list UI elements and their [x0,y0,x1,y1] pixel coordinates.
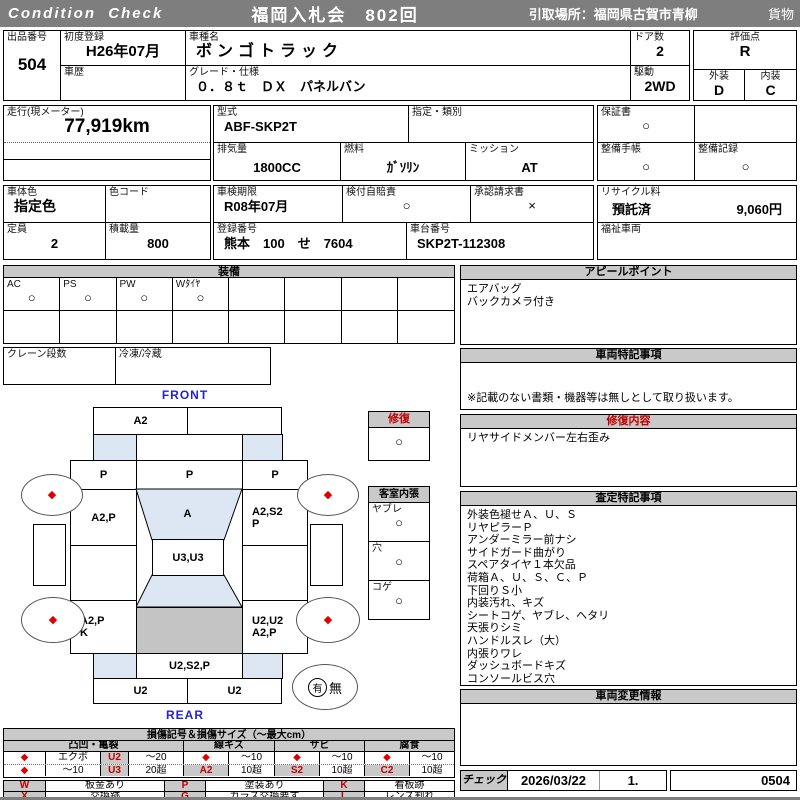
load-capacity-value: 800 [106,236,210,251]
score-cell: 評価点 R [693,30,797,70]
assessment-line: 外装色褪せＡ、Ｕ、Ｓ [467,509,790,522]
equipment-cell-empty [342,278,398,311]
zone-bed-right-line1: U2,U2 [252,615,283,627]
legend-symbol-p: P [165,781,206,791]
appeal-points-header: アピールポイント [461,266,796,280]
assessment-line: シートコゲ、ヤブレ、ヘタリ [467,610,790,623]
maintenance-record-mark: ○ [695,160,796,174]
warranty-cell: 保証書 ○ [597,105,695,143]
equipment-cell-wtire: Wﾀｲﾔ ○ [173,278,229,311]
rear-label: REAR [120,708,250,722]
zone-roof: A [160,508,216,520]
score-value: R [694,44,796,59]
maintenance-book-label: 整備手帳 [598,143,694,156]
chassis-number-label: 車台番号 [407,223,593,236]
legend-symbol-k: K [324,781,365,791]
approval-request-mark: × [471,199,593,213]
equipment-mark: ○ [117,291,172,305]
zone-cab-back: U3,U3 [152,539,224,576]
transmission-value: AT [466,160,593,175]
repair-flag-box: 修復 ○ [368,411,430,461]
legend-scratch-size: ～10 [229,752,275,764]
zone-side-guard-left [33,524,66,586]
drive-cell: 駆動 2WD [630,65,690,101]
check-number-value: 1. [600,771,666,790]
registration-number-label: 登録番号 [214,223,406,236]
assessment-line: サイドガード曲がり [467,547,790,560]
fuel-value: ｶﾞｿﾘﾝ [341,160,465,175]
equipment-cell-ps: PS ○ [60,278,116,311]
equipment-cell-empty [229,311,285,344]
legend-dent-name: ～10 [46,765,101,776]
interior-grade-cell: 内装 C [744,69,797,101]
check-code-cell: 0504 [670,770,797,791]
grade-value: ０．８ｔ ＤＸ パネルバン [186,79,630,94]
maintenance-record-cell: 整備記録 ○ [694,142,797,181]
equipment-mark: ○ [60,291,115,305]
front-label: FRONT [120,388,250,402]
fuel-cell: 燃料 ｶﾞｿﾘﾝ [340,142,466,181]
legend-dent-name: エクボ [46,752,101,764]
insurance-cell: 検付自賠責 ○ [342,185,471,223]
legend-size-table: ◆ エクボ U2 ～20 ◆ ～10 ◆ ～10 ◆ ～10 ◆ ～10 U3 … [3,751,455,778]
zone-front-bumper-left: A2 [93,407,188,435]
zone-fender-right: P [242,460,308,490]
insurance-mark: ○ [343,199,470,213]
zone-rear-bumper-left: U2 [93,678,188,704]
change-info-panel: 車両変更情報 [460,689,797,766]
equipment-cell-empty [60,311,116,344]
legend-scratch-size: 10超 [229,765,275,776]
zone-rear-corner-right [242,653,283,679]
displacement-cell: 排気量 1800CC [213,142,341,181]
zone-front-corner-left [93,434,137,461]
model-code-label: 型式 [214,106,408,119]
cabin-row-mark: ○ [369,516,429,530]
damage-diamond-icon: ◆ [48,490,56,501]
equipment-cell-empty [342,311,398,344]
recycle-status: 預託済 [612,199,651,218]
capacity-label: 定員 [4,223,105,236]
zone-door-right-line2: P [252,518,259,530]
auction-sheet: Condition Check 福岡入札会 802回 引取場所：福岡県古賀市青柳… [0,0,800,800]
legend-code-c2: C2 [365,765,410,776]
legend-size-row1: ◆ エクボ U2 ～20 ◆ ～10 ◆ ～10 ◆ ～10 [4,752,454,764]
reefer-cell: 冷凍/冷蔵 [115,347,271,385]
color-code-label: 色コード [106,186,210,199]
model-name-value: ボンゴトラック [186,44,630,59]
change-info-header: 車両変更情報 [461,690,796,704]
zone-front-bumper-right [187,407,282,435]
model-name-cell: 車種名 ボンゴトラック [185,30,631,66]
repair-flag-mark: ○ [369,435,429,449]
repair-detail-line: リヤサイドメンバー左右歪み [461,429,796,448]
zone-side-right-mid [242,545,308,601]
cabin-row-mark: ○ [369,594,429,608]
interior-grade-value: C [745,83,796,98]
legend-corrosion-size: 10超 [410,765,454,776]
welfare-vehicle-cell: 福祉車両 [597,222,797,260]
assessment-notes-panel: 査定特記事項 外装色褪せＡ、Ｕ、Ｓ リヤピラーＰ アンダーミラー前ナシ サイドガ… [460,491,797,686]
zone-cargo-bed [136,607,243,654]
vehicle-history-cell: 車歴 [60,65,186,101]
legend-rust-size: ～10 [320,752,365,764]
registration-number-value: 熊本 100 せ 7604 [214,236,406,251]
displacement-label: 排気量 [214,143,340,156]
wheel-rear-left: ◆ [21,597,85,643]
equipment-cell-empty [117,311,173,344]
repair-detail-header: 修復内容 [461,415,796,429]
first-registration-cell: 初度登録 H26年07月 [60,30,186,66]
legend-code-s2: S2 [275,765,320,776]
wheel-front-right: ◆ [297,474,359,516]
reefer-label: 冷凍/冷蔵 [116,348,270,361]
equipment-cell-pw: PW ○ [117,278,173,311]
exterior-grade-cell: 外装 D [693,69,745,101]
assessment-line: ハンドルスレ（大） [467,635,790,648]
lot-number-label: 出品番号 [4,31,60,44]
mileage-divider-dotted [4,142,210,143]
load-capacity-cell: 積載量 800 [105,222,211,260]
inspection-expiry-label: 車検期限 [214,186,342,199]
cabin-lining-header: 客室内張 [369,487,429,503]
legend-code-u2: U2 [101,752,129,764]
appeal-line: バックカメラ付き [467,296,790,309]
maintenance-book-mark: ○ [598,160,694,174]
auction-title: 福岡入札会 802回 [251,1,418,26]
zone-front-corner-right [242,434,283,461]
zone-rear-panel: U2,S2,P [136,653,243,679]
cabin-row-hole: 穴 ○ [369,542,429,581]
zone-side-left-mid [70,545,137,601]
legend-size-row2: ◆ ～10 U3 20超 A2 10超 S2 10超 C2 10超 [4,764,454,776]
model-code-cell: 型式 ABF-SKP2T [213,105,409,143]
displacement-value: 1800CC [214,160,340,175]
doors-cell: ドア数 2 [630,30,690,66]
empty-cell-top-right [694,105,797,143]
assessment-line: 荷箱Ａ、Ｕ、Ｓ、Ｃ、Ｐ [467,572,790,585]
warranty-mark: ○ [598,119,694,133]
cabin-row-mark: ○ [369,555,429,569]
lot-number-value: 504 [4,57,60,72]
capacity-cell: 定員 2 [3,222,106,260]
zone-front-center [136,434,243,461]
transmission-cell: ミッション AT [465,142,594,181]
vehicle-notes-panel: 車両特記事項 ※記載のない書類・機器等は無しとして取り扱います。 [460,348,797,410]
assessment-line: ダッシュボードキズ [467,660,790,673]
equipment-cell-empty [285,311,341,344]
legend-symbol-row1: W 板金あり P 塗装あり K 看板跡 [4,781,454,792]
assessment-line: 内装汚れ、キズ [467,597,790,610]
damage-diamond-icon: ◆ [49,615,57,626]
repair-detail-panel: 修復内容 リヤサイドメンバー左右歪み [460,414,797,487]
legend-rust-size: 10超 [320,765,365,776]
legend-symbol-p-desc: 塗装あり [206,781,324,791]
chassis-number-value: SKP2T-112308 [407,236,593,251]
repair-flag-header: 修復 [369,412,429,428]
legend-dent-size: 20超 [129,765,184,776]
zone-rear-bumper-right: U2 [187,678,282,704]
recycle-fee-label: リサイクル料 [598,186,796,199]
assessment-line: 内張りワレ [467,648,790,661]
crane-stages-cell: クレーン段数 [3,347,116,385]
legend-group-corrosion: 腐食 [365,741,454,751]
registration-number-cell: 登録番号 熊本 100 せ 7604 [213,222,407,260]
appeal-line: エアバッグ [467,283,790,296]
equipment-cell-empty [398,278,454,311]
damage-diamond-icon: ◆ [365,752,410,764]
vehicle-notes-header: 車両特記事項 [461,349,796,363]
designation-class-cell: 指定・類別 [408,105,594,143]
equipment-mark: ○ [173,291,228,305]
approval-request-cell: 承認請求書 × [470,185,594,223]
assessment-line: コンソールビス穴 [467,673,790,686]
presence-yes-circled: 有 [308,678,327,697]
legend-group-rust: サビ [275,741,365,751]
inspection-expiry-value: R08年07月 [214,199,342,214]
assessment-line: 下回りＳ小 [467,585,790,598]
zone-rear-corner-left [93,653,137,679]
assessment-line: アンダーミラー前ナシ [467,534,790,547]
damage-diamond-icon: ◆ [184,752,229,764]
zone-door-right-line1: A2,S2 [252,506,283,518]
doors-value: 2 [631,44,689,59]
legend-corrosion-size: ～10 [410,752,454,764]
equipment-mark: ○ [4,291,59,305]
inspection-expiry-cell: 車検期限 R08年07月 [213,185,343,223]
grade-cell: グレード・仕様 ０．８ｔ ＤＸ パネルバン [185,65,631,101]
body-color-cell: 車体色 指定色 [3,185,106,223]
equipment-cell-empty [4,311,60,344]
equipment-grid: AC ○ PS ○ PW ○ Wﾀｲﾔ ○ [3,277,455,344]
welfare-vehicle-label: 福祉車両 [598,223,796,236]
damage-diamond-icon: ◆ [4,765,46,776]
drive-value: 2WD [631,79,689,94]
vehicle-history-label: 車歴 [61,66,185,79]
legend-symbol-k-desc: 看板跡 [365,781,454,791]
appeal-points-panel: アピールポイント エアバッグ バックカメラ付き [460,265,797,345]
equipment-cell-ac: AC ○ [4,278,60,311]
mileage-divider-solid [4,159,210,160]
cabin-row-tear: ヤブレ ○ [369,503,429,542]
check-date-value: 2026/03/22 [508,771,600,790]
cabin-lining-box: 客室内張 ヤブレ ○ 穴 ○ コゲ ○ [368,486,430,620]
damage-diamond-icon: ◆ [324,490,332,501]
presence-no: 無 [329,678,342,697]
check-date-cell: 2026/03/22 1. [507,770,667,791]
fuel-label: 燃料 [341,143,465,156]
mileage-cell: 走行(現メーター) 77,919km [3,105,211,181]
maintenance-record-label: 整備記録 [695,143,796,156]
damage-diamond-icon: ◆ [275,752,320,764]
title-bar: Condition Check 福岡入札会 802回 引取場所：福岡県古賀市青柳… [0,0,800,27]
category-badge: 貨物 [768,4,794,23]
maintenance-book-cell: 整備手帳 ○ [597,142,695,181]
wheel-rear-right: ◆ [296,597,360,643]
damage-diamond-icon: ◆ [324,615,332,626]
mileage-value: 77,919km [4,119,210,134]
exterior-grade-value: D [694,83,744,98]
assessment-line: 天張りシミ [467,622,790,635]
legend-group-dent: 凸凹・亀裂 [4,741,184,751]
legend-dent-size: ～20 [129,752,184,764]
color-code-cell: 色コード [105,185,211,223]
assessment-line: リヤピラーＰ [467,522,790,535]
legend-symbol-w: W [4,781,46,791]
pickup-location: 引取場所：福岡県古賀市青柳 [529,4,698,23]
assessment-line: スペアタイヤ１本欠品 [467,559,790,572]
recycle-fee-cell: リサイクル料 預託済 9,060円 [597,185,797,223]
legend-code-u3: U3 [101,765,129,776]
assessment-notes-header: 査定特記事項 [461,492,796,506]
designation-class-label: 指定・類別 [409,106,593,119]
legend-symbol-w-desc: 板金あり [46,781,165,791]
check-label-cell: チェック [460,770,508,791]
first-registration-value: H26年07月 [61,44,185,59]
capacity-value: 2 [4,236,105,251]
zone-bed-right-line2: A2,P [252,627,276,639]
crane-stages-label: クレーン段数 [4,348,115,361]
zone-side-guard-right [310,524,343,586]
recycle-fee-value: 9,060円 [736,199,782,218]
brand-logo: Condition Check [8,5,163,22]
body-color-value: 指定色 [4,199,105,214]
spare-tire-presence: 有 無 [292,664,358,710]
equipment-cell-empty [398,311,454,344]
lot-number-cell: 出品番号 504 [3,30,61,101]
damage-diamond-icon: ◆ [4,752,46,764]
equipment-cell-empty [285,278,341,311]
legend-group-scratch: 線キズ [184,741,275,751]
grade-label: グレード・仕様 [186,66,630,79]
load-capacity-label: 積載量 [106,223,210,236]
zone-windshield: P [136,460,243,490]
transmission-label: ミッション [466,143,593,156]
equipment-cell-empty [229,278,285,311]
vehicle-notes-note: ※記載のない書類・機器等は無しとして取り扱います。 [461,389,745,408]
wheel-front-left: ◆ [21,474,83,516]
cabin-row-burn: コゲ ○ [369,581,429,620]
chassis-number-cell: 車台番号 SKP2T-112308 [406,222,594,260]
legend-code-a2: A2 [184,765,229,776]
model-code-value: ABF-SKP2T [214,119,408,134]
equipment-cell-empty [173,311,229,344]
